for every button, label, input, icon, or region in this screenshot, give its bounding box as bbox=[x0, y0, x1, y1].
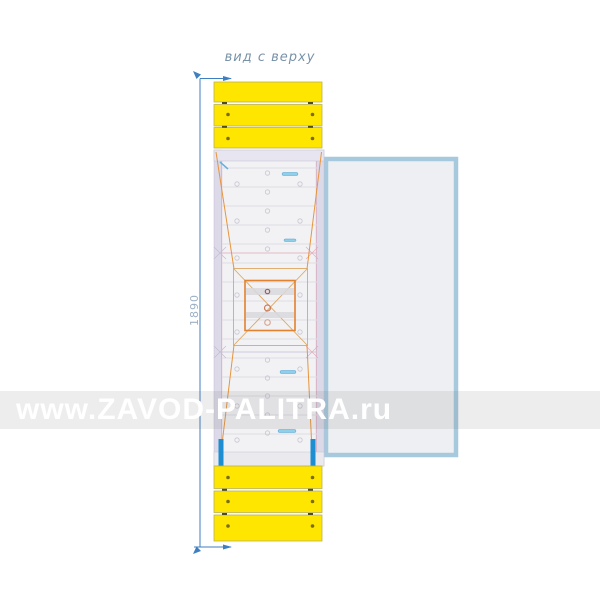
drawing-canvas: вид с верху bbox=[0, 0, 600, 600]
tower-bottom-beam bbox=[214, 452, 324, 466]
handrail-post-left bbox=[219, 439, 224, 467]
technical-drawing bbox=[0, 0, 600, 600]
watermark-band: www.ZAVOD-PALITRA.ru bbox=[0, 391, 600, 429]
tower-top-beam bbox=[214, 150, 324, 161]
top-bench-slats bbox=[214, 82, 322, 148]
bottom-bench-slats bbox=[214, 466, 322, 541]
height-dimension-label: 1890 bbox=[188, 290, 202, 330]
center-slat-bar bbox=[246, 312, 294, 318]
handrail-post-right bbox=[311, 439, 316, 467]
watermark-text: www.ZAVOD-PALITRA.ru bbox=[16, 391, 392, 429]
